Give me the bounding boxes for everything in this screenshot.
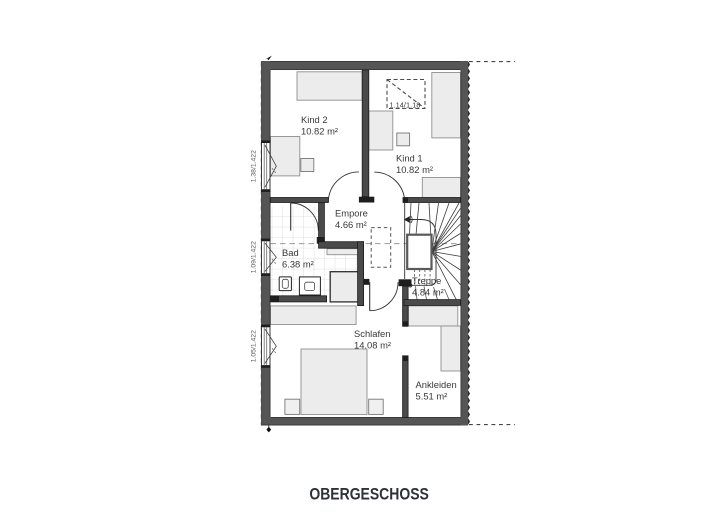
svg-text:4.84 m²: 4.84 m² — [412, 287, 444, 298]
svg-text:5.51 m²: 5.51 m² — [416, 391, 448, 402]
svg-text:14.08 m²: 14.08 m² — [354, 340, 391, 351]
svg-text:1.14/1.18: 1.14/1.18 — [390, 100, 421, 109]
svg-text:1.05/1.422: 1.05/1.422 — [250, 330, 257, 362]
svg-text:Ankleiden: Ankleiden — [416, 379, 457, 390]
svg-text:10.82 m²: 10.82 m² — [396, 164, 433, 175]
svg-text:Empore: Empore — [335, 208, 368, 219]
svg-text:Kind 1: Kind 1 — [396, 153, 423, 164]
svg-text:OBERGESCHOSS: OBERGESCHOSS — [309, 486, 429, 504]
svg-text:Treppe: Treppe — [412, 275, 441, 286]
svg-text:Schlafen: Schlafen — [354, 328, 390, 339]
svg-text:10.82 m²: 10.82 m² — [301, 125, 338, 136]
svg-text:1.09/1.422: 1.09/1.422 — [250, 241, 257, 273]
svg-text:4.66 m²: 4.66 m² — [335, 219, 367, 230]
svg-text:Kind 2: Kind 2 — [301, 114, 328, 125]
svg-text:6.38 m²: 6.38 m² — [282, 259, 314, 270]
svg-text:1.38/1.422: 1.38/1.422 — [250, 150, 257, 182]
svg-text:Bad: Bad — [282, 247, 299, 258]
